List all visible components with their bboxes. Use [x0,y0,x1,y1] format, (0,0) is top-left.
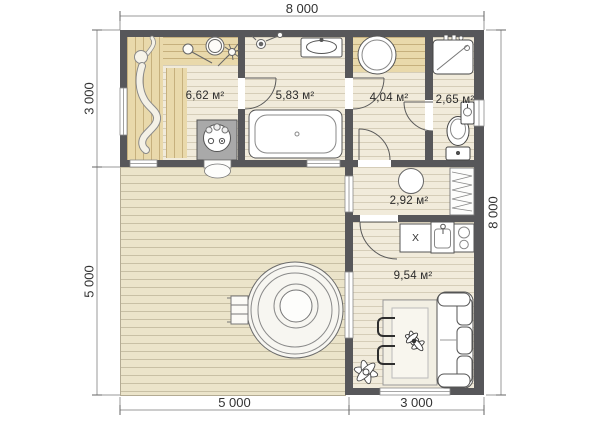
dim-left-lower: 5 000 [82,252,97,312]
hot-tub-icon [227,262,343,358]
tub-steps-icon [227,296,248,324]
dim-bottom-right: 3 000 [349,395,484,410]
shower-cabin-icon [433,35,473,74]
sauna-area-label: 6,62 м² [160,90,250,102]
entry-stairs-icon [450,168,474,215]
plant-icon [353,359,378,384]
sink-icon [301,38,342,57]
sofa-icon [437,292,473,388]
bath-mixer-icon [252,33,283,49]
lounge-area-label: 9,54 м² [368,270,458,282]
dim-right: 8 000 [486,183,501,243]
person-silhouette [135,38,158,150]
bathroom-area-label: 5,83 м² [250,90,340,102]
sauna-bucket-icon [206,37,224,55]
cooktop-icon [454,224,474,252]
sauna-stove-icon [197,120,237,178]
dim-left-upper: 3 000 [82,69,97,129]
floor-plan: 6,62 м² 5,83 м² 4,04 м² 2,65 м² 2,92 м² … [0,0,600,424]
bathtub-icon [249,110,342,158]
hall-area-label: 2,92 м² [364,195,454,207]
kitchen-sink-icon [431,222,454,253]
wc-area-label: 2,65 м² [410,94,500,106]
barrel-font-icon [358,36,396,74]
dim-bottom-left: 5 000 [120,395,349,410]
plan-drawing [0,0,600,424]
kitchen-appliance-label: X [400,232,431,244]
water-heater-icon [399,169,424,194]
dim-top: 8 000 [120,1,484,16]
